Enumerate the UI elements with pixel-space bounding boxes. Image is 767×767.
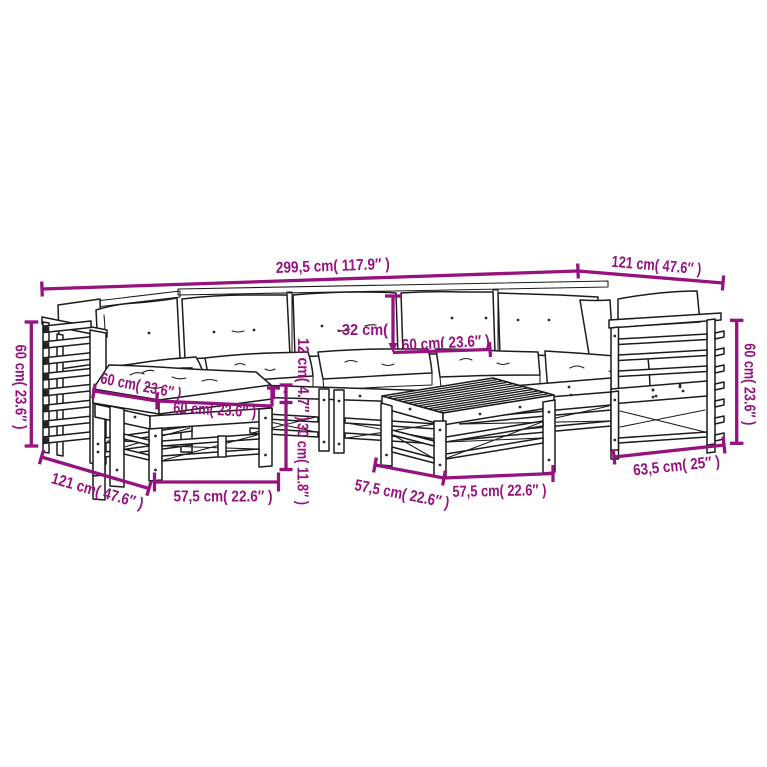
svg-text:12 cm( 4.7″ ): 12 cm( 4.7″ ): [294, 338, 311, 421]
svg-text:-32 cm(: -32 cm(: [337, 322, 389, 339]
svg-text:57,5 cm( 22.6″ ): 57,5 cm( 22.6″ ): [452, 482, 546, 501]
svg-text:30 cm( 11.8″ ): 30 cm( 11.8″ ): [294, 423, 311, 505]
svg-text:57,5 cm( 22.6″ ): 57,5 cm( 22.6″ ): [174, 489, 273, 506]
svg-text:60 cm( 23.6″ ): 60 cm( 23.6″ ): [12, 345, 29, 430]
svg-text:60 cm( 23.6″ ): 60 cm( 23.6″ ): [741, 343, 758, 425]
